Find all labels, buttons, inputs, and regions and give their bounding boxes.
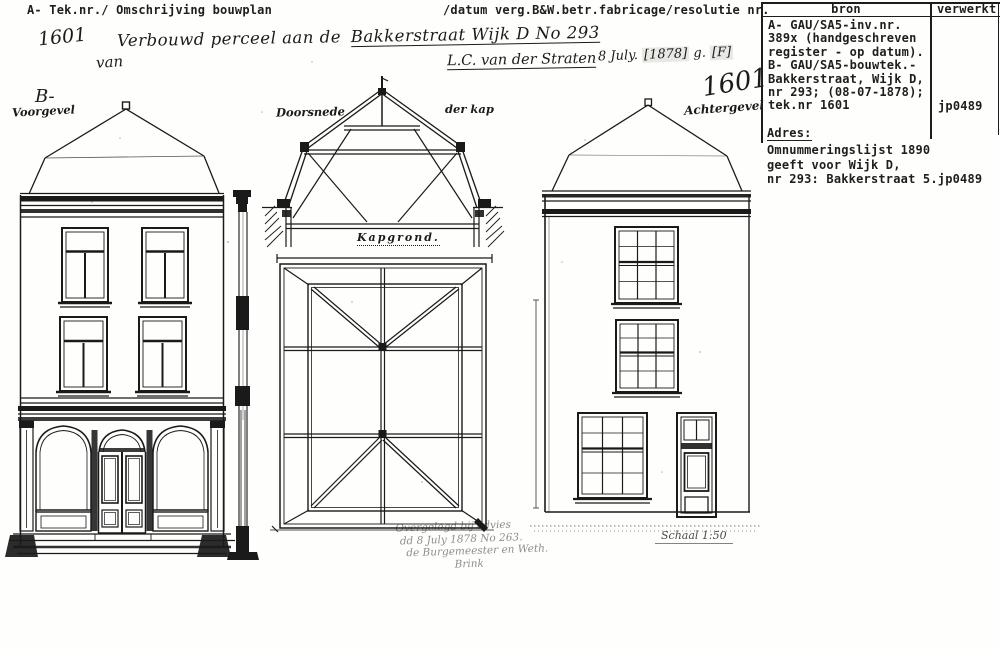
date-year-stamp: [1878] (642, 46, 690, 63)
scale-note-label: Schaal 1:50 (655, 529, 733, 544)
front-first-floor-windows (56, 317, 190, 396)
table-border-left (761, 2, 763, 143)
bron-line: Bakkerstraat, Wijk D, (768, 73, 924, 86)
table-header-bron: bron (762, 2, 930, 16)
date-g-mark: g. (693, 46, 706, 61)
rear-ground-window (573, 413, 652, 503)
handwritten-owner-name: L.C. van der Straten (447, 51, 597, 71)
section-title-right-label: der kap (445, 102, 494, 116)
adres-line: nr 293: Bakkerstraat 5.jp0489 (767, 172, 982, 187)
shopfront (19, 421, 225, 533)
handwritten-van: van (95, 52, 123, 72)
form-header-left: A- Tek.nr./ Omschrijving bouwplan (27, 3, 272, 17)
rear-attic-window (611, 227, 682, 308)
table-bron-cell: A- GAU/SA5-inv.nr. 389x (handgeschreven … (768, 19, 924, 113)
rear-upper-window (612, 320, 682, 397)
roof-plan-title-label: Kapgrond. (357, 231, 440, 246)
bron-line: A- GAU/SA5-inv.nr. (768, 19, 924, 32)
bron-line: nr 293; (08-07-1878); (768, 86, 924, 99)
date-f-stamp: [F] (710, 45, 734, 61)
adres-line: Omnummeringslijst 1890 (767, 143, 982, 158)
bron-line: register - op datum). (768, 46, 924, 59)
table-column-divider (930, 2, 932, 139)
adres-line: geeft voor Wijk D, (767, 158, 982, 173)
bron-line: tek.nr 1601 (768, 99, 924, 112)
section-title-left-label: Doorsnede (276, 104, 345, 119)
table-header-verwerkt: verwerkt (937, 2, 996, 16)
archival-building-plan-scan: A- Tek.nr./ Omschrijving bouwplan /datum… (0, 0, 1000, 649)
front-elevation-drawing (5, 102, 235, 557)
bron-line: B- GAU/SA5-bouwtek.- (768, 59, 924, 72)
table-border-right (998, 2, 1000, 135)
rear-elevation-drawing (530, 99, 760, 531)
front-wall-section-profile (227, 190, 259, 560)
form-header-right: /datum verg.B&W.betr.fabricage/resolutie… (443, 3, 770, 17)
date-day: 8 July. (598, 48, 638, 64)
adres-block: Omnummeringslijst 1890 geeft voor Wijk D… (767, 143, 982, 187)
front-ground-line (5, 534, 235, 557)
approval-annotation: Overgelegd bij advies dd 8 July 1878 No … (395, 517, 549, 572)
table-verwerkt-value: jp0489 (938, 99, 983, 113)
description-text: Verbouwd perceel aan de (117, 27, 341, 50)
roof-plan-drawing (270, 254, 494, 532)
front-second-floor-windows (58, 228, 192, 307)
rear-door (677, 413, 716, 517)
bron-line: 389x (handgeschreven (768, 32, 924, 45)
adres-label: Adres: (767, 126, 812, 141)
